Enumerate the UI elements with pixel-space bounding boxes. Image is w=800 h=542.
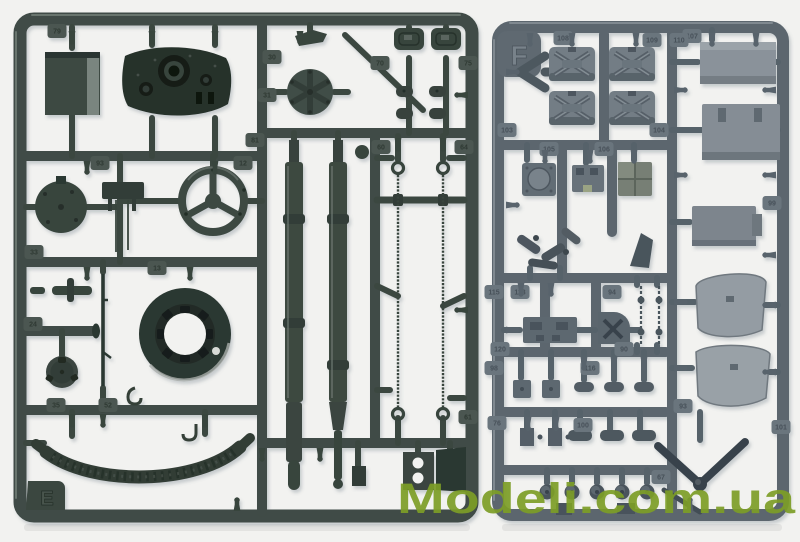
part-number: 104 <box>653 128 665 135</box>
fender-latch <box>730 364 738 370</box>
gun-barrel-part-1 <box>283 140 305 490</box>
part-number: 93 <box>679 404 687 411</box>
six-spoke-wheel-part <box>287 69 333 115</box>
part-number: 60 <box>377 145 385 152</box>
part-number: 90 <box>620 347 628 354</box>
watermark-text: Modeli.com.ua <box>397 475 796 523</box>
jerry-can-part <box>549 91 595 125</box>
stowage-box-1 <box>700 42 776 84</box>
part-number: 108 <box>557 36 569 43</box>
part-number: 61 <box>464 415 472 422</box>
part-number: 33 <box>30 250 38 257</box>
part-number: 75 <box>464 61 472 68</box>
part-number: 93 <box>96 161 104 168</box>
part-number: 103 <box>501 128 513 135</box>
part-number: 115 <box>488 290 499 297</box>
sprue-photo-canvas: E 79303170758193126064331324355261 F <box>0 0 800 542</box>
part-number: 106 <box>598 147 610 154</box>
part-number: 101 <box>775 425 787 432</box>
part-number: 98 <box>490 366 498 373</box>
sprue-photo: E 79303170758193126064331324355261 F <box>0 0 800 542</box>
stowage-box-2 <box>702 104 780 160</box>
part-number: 30 <box>268 55 276 62</box>
part-number: 52 <box>104 403 112 410</box>
part-number: 70 <box>376 61 384 68</box>
part-number: 110 <box>673 38 684 45</box>
right-sprue-shadow <box>502 524 782 531</box>
part-number: 35 <box>52 403 60 410</box>
jerry-can-part <box>609 47 655 81</box>
part-number: 100 <box>577 423 589 430</box>
turret-ring-part <box>139 288 231 380</box>
part-number: 12 <box>239 161 247 168</box>
fender-latch <box>726 296 734 302</box>
jerry-can-part <box>549 47 595 81</box>
part-number: 120 <box>494 347 506 354</box>
part-number: 13 <box>153 266 161 273</box>
part-number: 94 <box>608 290 616 297</box>
sprue-letter-e: E <box>40 488 53 510</box>
fender-part-2 <box>696 345 770 406</box>
part-number: 31 <box>263 93 271 100</box>
turret-block-part <box>122 47 231 115</box>
stowage-box-3 <box>692 206 762 246</box>
part-number: 76 <box>493 421 501 428</box>
part-number: 24 <box>29 322 37 329</box>
stowage-box-part <box>45 52 100 115</box>
part-number: 64 <box>460 145 468 152</box>
bracket-plate-part <box>523 317 577 343</box>
fender-part-1 <box>696 274 766 337</box>
round-cap-hatch-part <box>522 163 556 196</box>
quadrant-plate-part <box>618 162 652 196</box>
left-sprue-shadow <box>24 524 470 531</box>
x-cross-part <box>598 312 630 344</box>
part-number: 79 <box>53 29 61 36</box>
part-number: 99 <box>768 201 776 208</box>
jerry-can-part <box>609 91 655 125</box>
small-disc-part <box>355 145 369 159</box>
part-number: 109 <box>646 38 658 45</box>
clamp-plate-part <box>572 165 604 192</box>
part-number: 81 <box>251 138 259 145</box>
